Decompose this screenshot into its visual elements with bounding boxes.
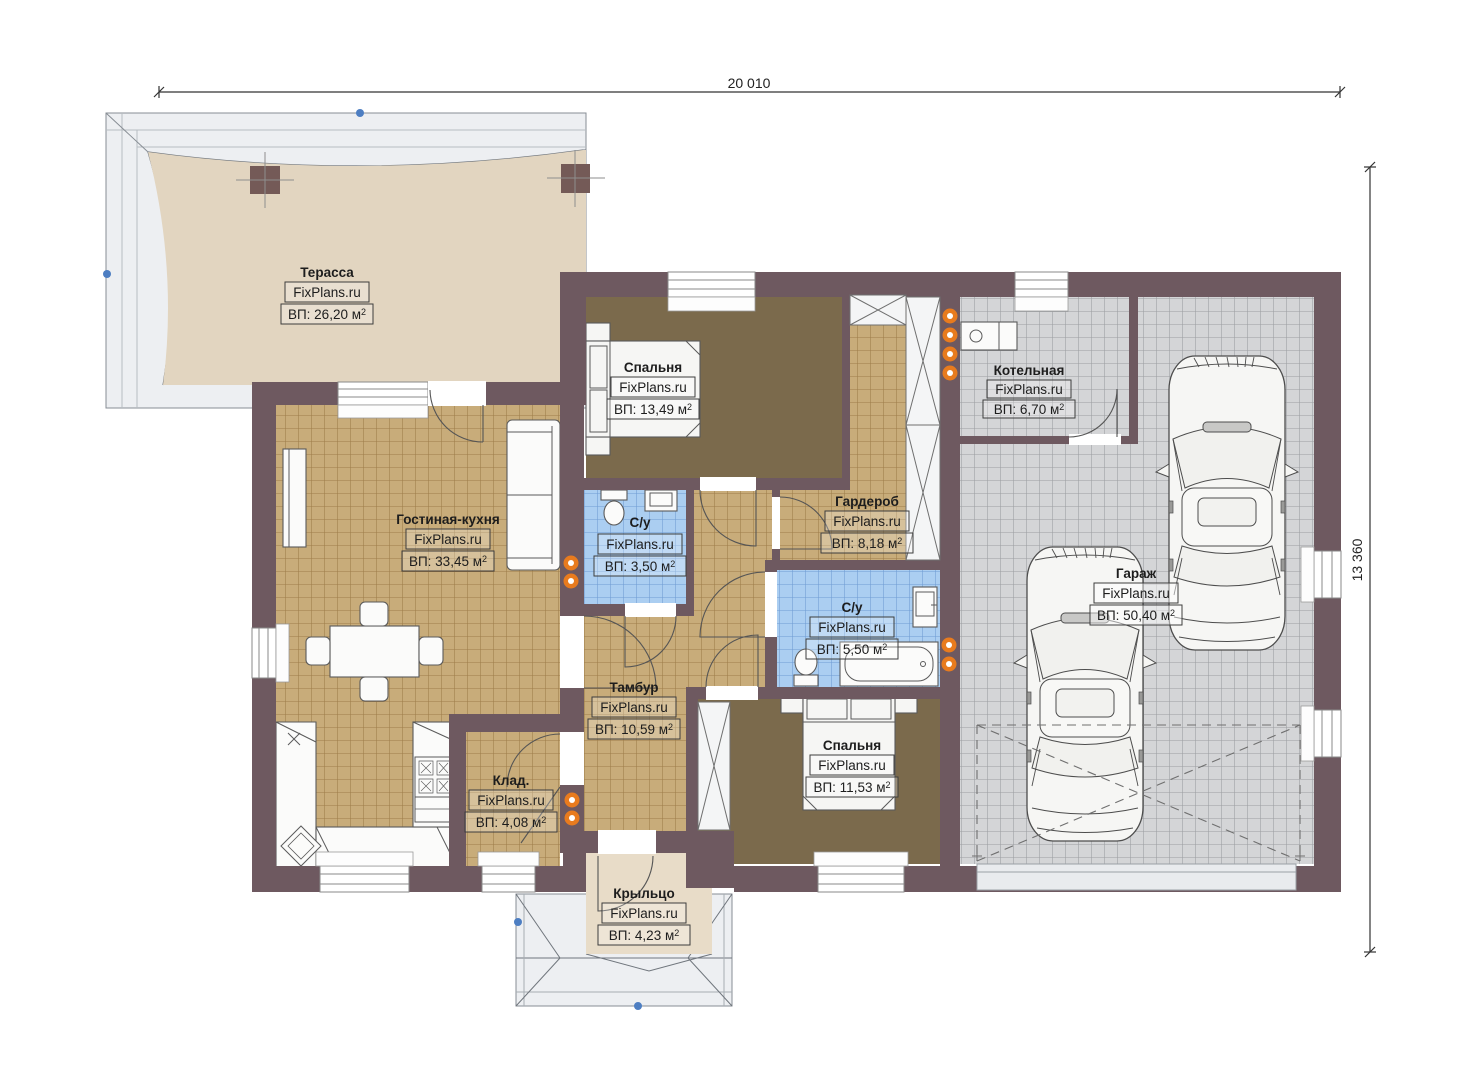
- svg-text:ВП: 4,08 м2: ВП: 4,08 м2: [476, 815, 547, 830]
- svg-text:FixPlans.ru: FixPlans.ru: [414, 532, 482, 547]
- svg-text:FixPlans.ru: FixPlans.ru: [833, 514, 901, 529]
- svg-text:FixPlans.ru: FixPlans.ru: [477, 793, 545, 808]
- svg-text:Гостиная-кухня: Гостиная-кухня: [396, 512, 499, 527]
- svg-text:ВП: 50,40 м2: ВП: 50,40 м2: [1097, 608, 1175, 623]
- svg-text:Гардероб: Гардероб: [835, 494, 899, 509]
- svg-text:Спальня: Спальня: [624, 360, 682, 375]
- svg-text:FixPlans.ru: FixPlans.ru: [818, 758, 886, 773]
- svg-text:FixPlans.ru: FixPlans.ru: [293, 285, 361, 300]
- svg-text:FixPlans.ru: FixPlans.ru: [600, 700, 668, 715]
- svg-text:ВП: 11,53 м2: ВП: 11,53 м2: [813, 780, 890, 795]
- svg-text:Клад.: Клад.: [493, 773, 530, 788]
- svg-text:ВП: 33,45 м2: ВП: 33,45 м2: [409, 554, 487, 569]
- svg-text:ВП: 13,49 м2: ВП: 13,49 м2: [614, 402, 692, 417]
- svg-text:ВП: 5,50 м2: ВП: 5,50 м2: [817, 642, 888, 657]
- svg-text:ВП: 10,59 м2: ВП: 10,59 м2: [595, 722, 673, 737]
- svg-text:ВП: 8,18 м2: ВП: 8,18 м2: [832, 536, 903, 551]
- svg-text:13 360: 13 360: [1349, 538, 1365, 581]
- svg-text:20 010: 20 010: [728, 75, 771, 91]
- svg-text:FixPlans.ru: FixPlans.ru: [818, 620, 886, 635]
- svg-text:ВП: 4,23 м2: ВП: 4,23 м2: [609, 928, 680, 943]
- svg-text:FixPlans.ru: FixPlans.ru: [1102, 586, 1170, 601]
- svg-text:ВП: 6,70 м2: ВП: 6,70 м2: [994, 402, 1065, 417]
- svg-text:FixPlans.ru: FixPlans.ru: [995, 382, 1063, 397]
- svg-text:С/у: С/у: [841, 600, 863, 615]
- svg-text:FixPlans.ru: FixPlans.ru: [610, 906, 678, 921]
- svg-text:ВП: 3,50 м2: ВП: 3,50 м2: [605, 559, 676, 574]
- svg-text:FixPlans.ru: FixPlans.ru: [606, 537, 674, 552]
- svg-text:С/у: С/у: [629, 515, 651, 530]
- svg-text:Котельная: Котельная: [994, 363, 1065, 378]
- svg-text:Терасса: Терасса: [300, 265, 354, 280]
- svg-text:Крыльцо: Крыльцо: [613, 886, 674, 901]
- svg-text:Спальня: Спальня: [823, 738, 881, 753]
- svg-text:FixPlans.ru: FixPlans.ru: [619, 380, 687, 395]
- svg-text:ВП: 26,20 м2: ВП: 26,20 м2: [288, 307, 366, 322]
- svg-text:Тамбур: Тамбур: [610, 680, 659, 695]
- svg-text:Гараж: Гараж: [1116, 566, 1157, 581]
